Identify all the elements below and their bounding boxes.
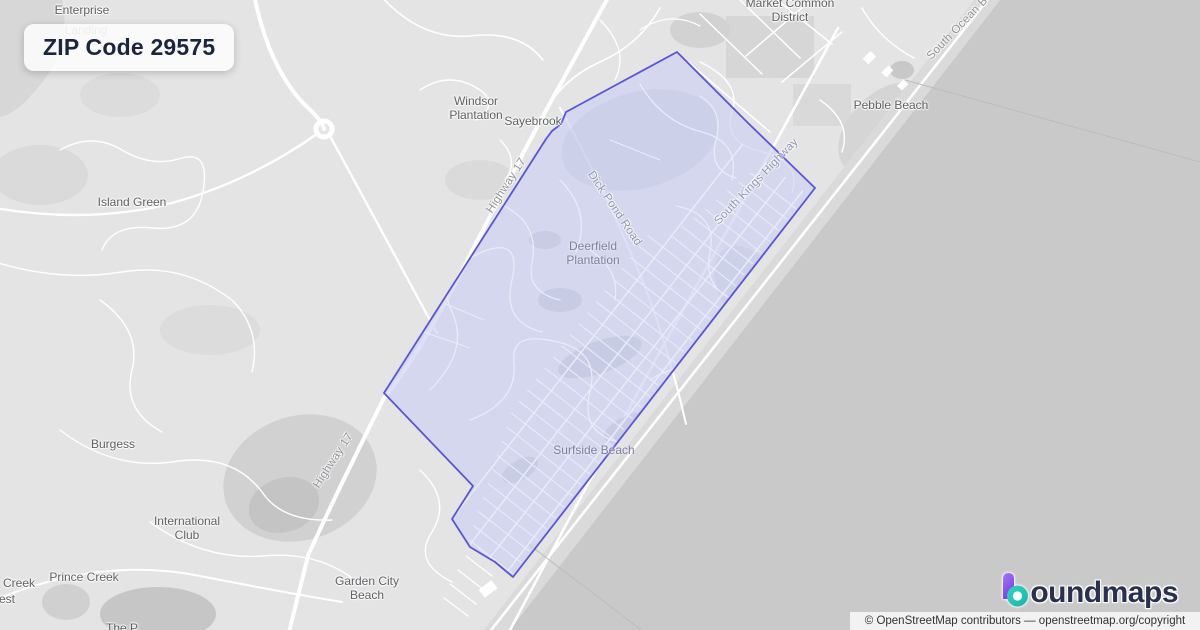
map-share-image: EnterpriseLandingWindsor PlantationSayeb… <box>0 0 1200 630</box>
osm-attribution[interactable]: © OpenStreetMap contributors — openstree… <box>850 612 1200 630</box>
boundmaps-wordmark: oundmaps <box>1030 579 1178 607</box>
zip-code-badge: ZIP Code 29575 <box>24 24 234 71</box>
boundmaps-b-icon <box>1003 573 1029 607</box>
zip-code-title: ZIP Code 29575 <box>43 34 215 60</box>
boundmaps-logo[interactable]: oundmaps <box>1003 573 1178 607</box>
osm-attribution-text[interactable]: © OpenStreetMap contributors — openstree… <box>865 615 1185 627</box>
map-canvas <box>0 0 1200 630</box>
